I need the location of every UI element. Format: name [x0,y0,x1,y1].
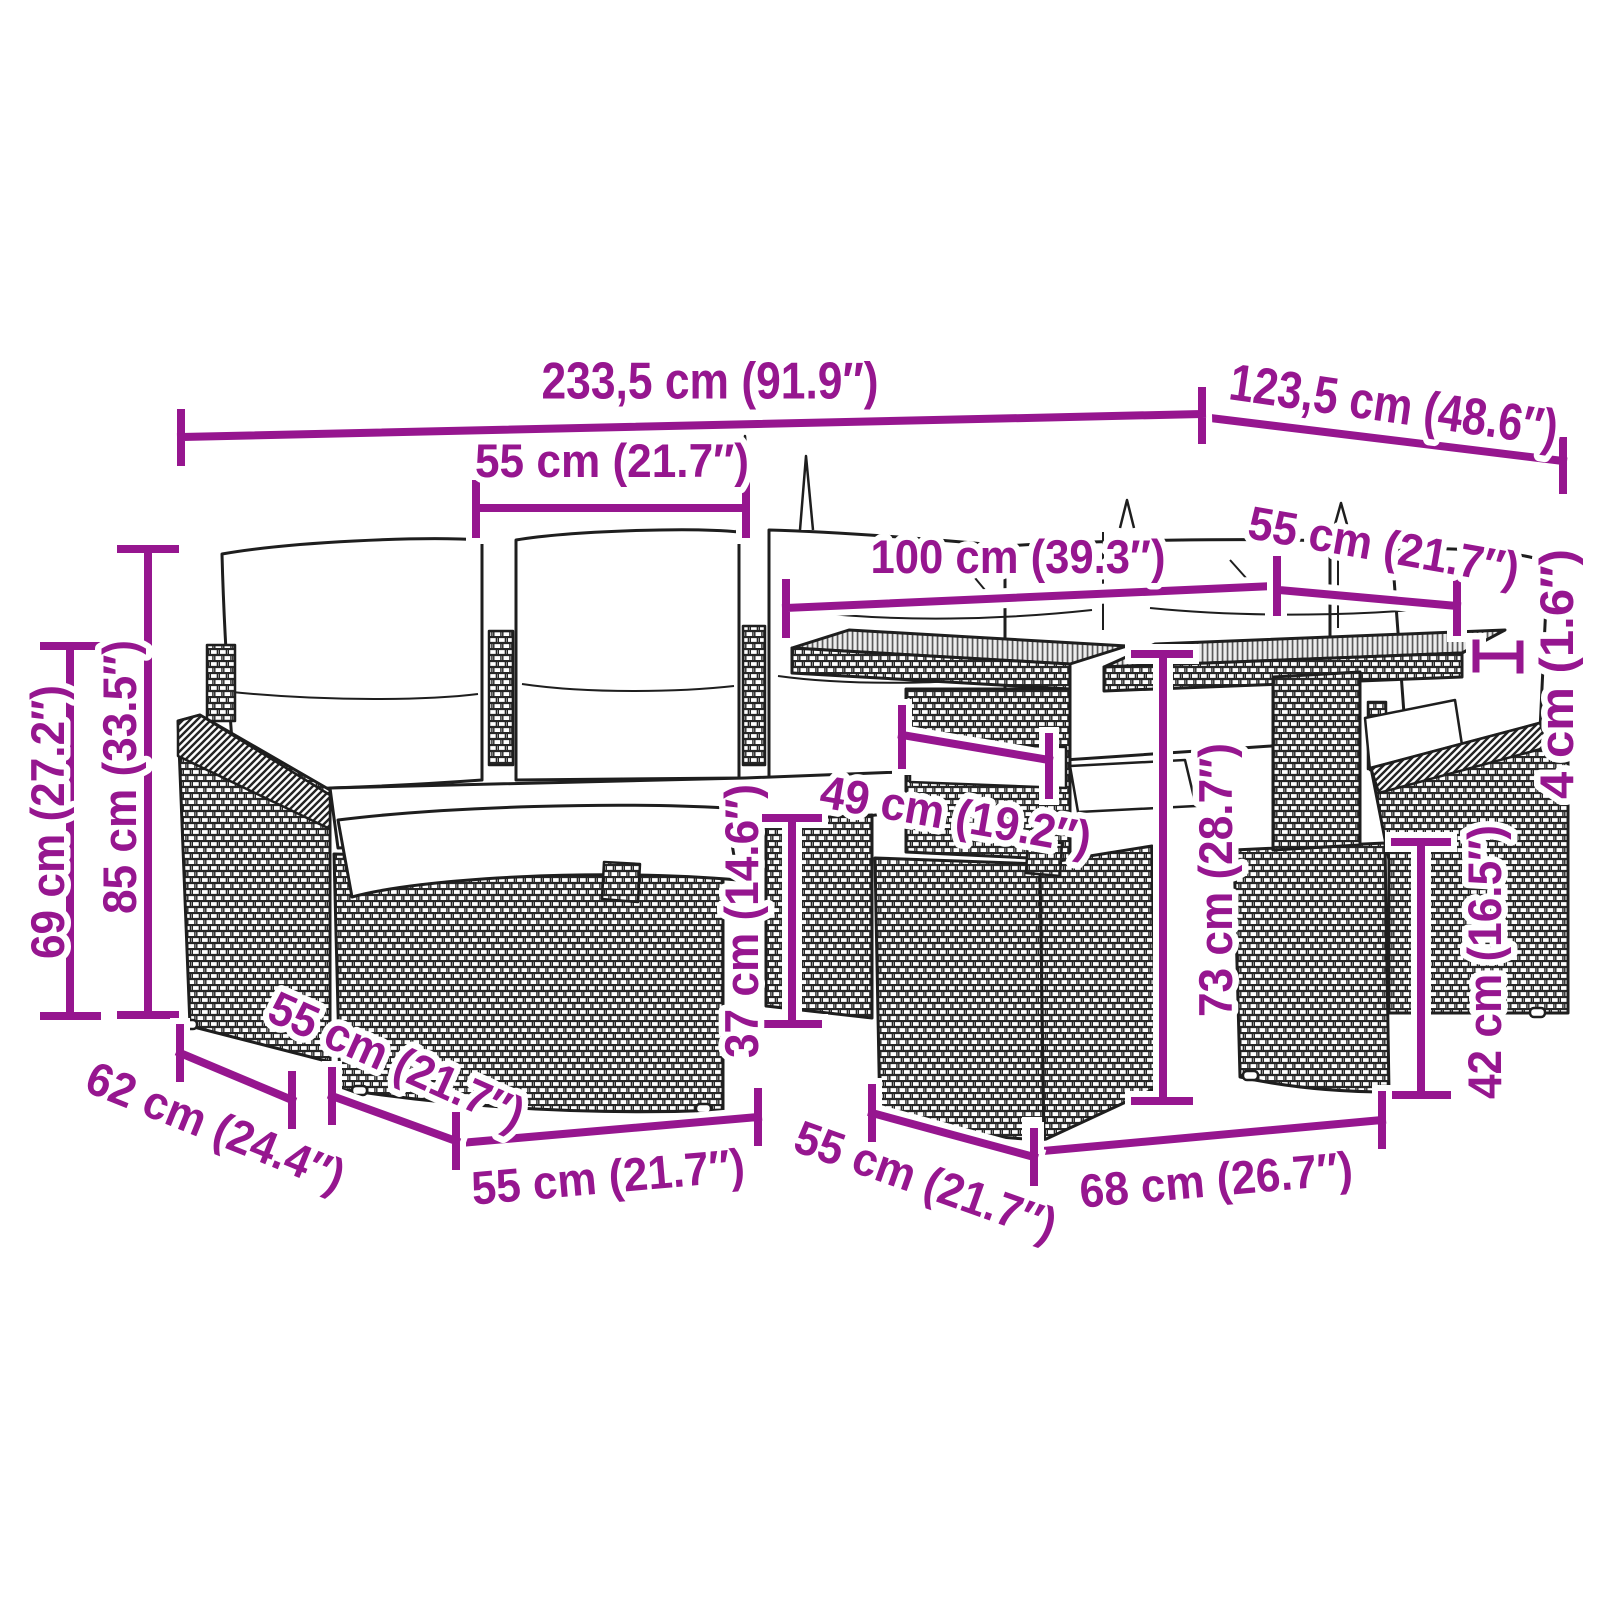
svg-text:69 cm (27.2″): 69 cm (27.2″) [21,685,74,959]
svg-text:73 cm (28.7″): 73 cm (28.7″) [1189,743,1242,1017]
svg-text:100 cm (39.3″): 100 cm (39.3″) [871,530,1166,583]
svg-text:55 cm (21.7″): 55 cm (21.7″) [475,434,749,487]
svg-text:42 cm (16.5″): 42 cm (16.5″) [1458,825,1511,1099]
svg-text:4 cm (1.6″): 4 cm (1.6″) [1530,549,1583,799]
svg-text:37 cm (14.6″): 37 cm (14.6″) [715,784,768,1058]
svg-text:233,5 cm (91.9″): 233,5 cm (91.9″) [542,353,879,411]
svg-text:85 cm (33.5″): 85 cm (33.5″) [93,640,146,914]
